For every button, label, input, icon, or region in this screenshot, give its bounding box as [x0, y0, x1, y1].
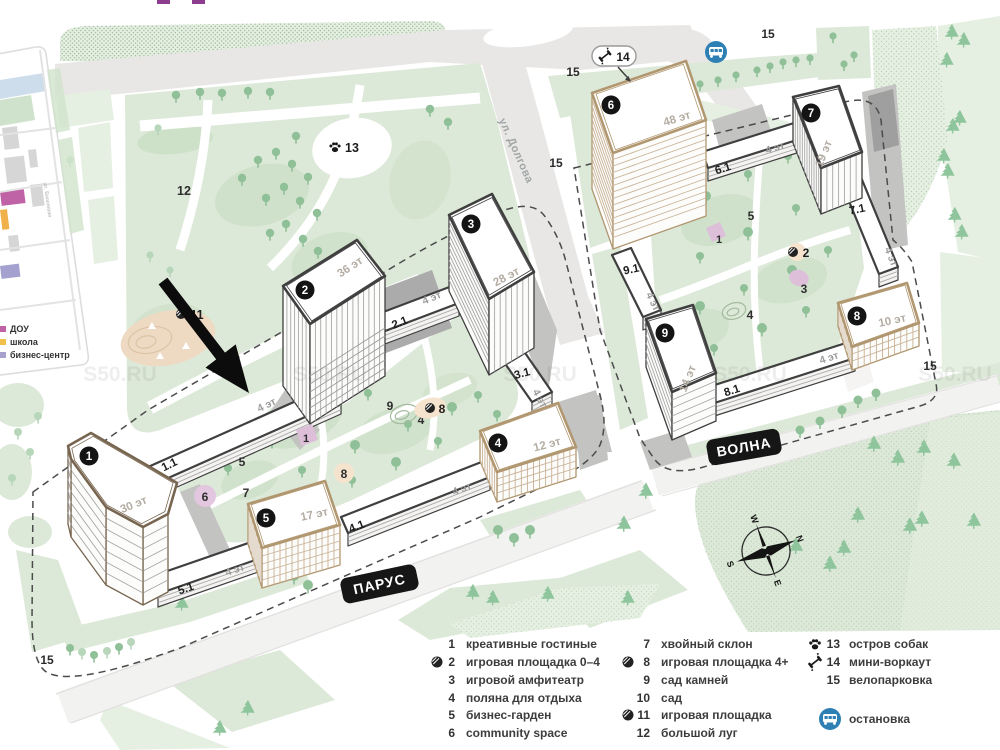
svg-text:большой луг: большой луг [661, 726, 738, 740]
svg-text:S50.RU: S50.RU [503, 363, 577, 386]
svg-text:1: 1 [303, 433, 309, 445]
svg-text:сад камней: сад камней [661, 673, 728, 687]
svg-text:S50.RU: S50.RU [918, 363, 992, 386]
svg-text:3: 3 [448, 673, 455, 687]
svg-text:13: 13 [345, 141, 359, 155]
svg-text:9: 9 [643, 673, 650, 687]
svg-text:2: 2 [448, 655, 455, 669]
svg-text:4: 4 [495, 438, 502, 450]
svg-text:13: 13 [827, 637, 841, 651]
svg-text:12: 12 [177, 184, 191, 198]
svg-text:15: 15 [827, 673, 841, 687]
svg-text:велопарковка: велопарковка [849, 673, 933, 687]
svg-text:10: 10 [637, 691, 651, 705]
svg-text:9: 9 [662, 328, 668, 340]
svg-text:5: 5 [448, 708, 455, 722]
svg-text:15: 15 [761, 27, 775, 41]
svg-text:4: 4 [448, 691, 455, 705]
svg-text:S50.RU: S50.RU [83, 363, 157, 386]
svg-text:6: 6 [608, 100, 614, 112]
svg-text:хвойный склон: хвойный склон [661, 637, 753, 651]
svg-text:5: 5 [239, 455, 246, 469]
svg-text:2: 2 [302, 285, 308, 297]
svg-text:8: 8 [439, 402, 446, 416]
svg-text:игровой амфитеатр: игровой амфитеатр [466, 673, 584, 687]
svg-text:15: 15 [566, 65, 580, 79]
svg-text:поляна для отдыха: поляна для отдыха [466, 691, 582, 705]
svg-text:3: 3 [801, 282, 808, 296]
svg-text:остров собак: остров собак [849, 637, 929, 651]
svg-text:креативные гостиные: креативные гостиные [466, 637, 597, 651]
svg-text:игровая площадка: игровая площадка [661, 708, 772, 722]
svg-text:5: 5 [263, 513, 270, 525]
svg-text:12: 12 [637, 726, 651, 740]
svg-text:6: 6 [202, 490, 209, 504]
svg-text:14: 14 [827, 655, 841, 669]
svg-text:community space: community space [466, 726, 568, 740]
svg-text:8: 8 [341, 467, 348, 481]
svg-text:игровая площадка 0–4: игровая площадка 0–4 [466, 655, 600, 669]
svg-text:15: 15 [549, 156, 563, 170]
svg-text:школа: школа [10, 337, 39, 347]
svg-text:8: 8 [854, 311, 861, 323]
svg-text:1: 1 [716, 234, 722, 246]
svg-text:ДОУ: ДОУ [10, 324, 29, 334]
svg-text:игровая площадка 4+: игровая площадка 4+ [661, 655, 789, 669]
svg-text:S50.RU: S50.RU [293, 363, 367, 386]
svg-text:сад: сад [661, 691, 682, 705]
svg-text:8: 8 [643, 655, 650, 669]
svg-text:7: 7 [643, 637, 650, 651]
svg-text:S50.RU: S50.RU [713, 363, 787, 386]
svg-text:14: 14 [616, 50, 630, 64]
svg-text:бизнес-гарден: бизнес-гарден [466, 708, 551, 722]
svg-text:15: 15 [40, 653, 54, 667]
svg-text:7: 7 [243, 486, 250, 500]
svg-text:1: 1 [86, 451, 93, 463]
svg-text:3: 3 [468, 219, 474, 231]
svg-text:1: 1 [448, 637, 455, 651]
svg-text:6: 6 [448, 726, 455, 740]
svg-text:мини-воркаут: мини-воркаут [849, 655, 931, 669]
svg-text:4: 4 [747, 308, 754, 322]
svg-text:остановка: остановка [849, 712, 910, 726]
svg-text:2: 2 [803, 246, 810, 260]
svg-text:бизнес-центр: бизнес-центр [10, 350, 70, 360]
svg-text:5: 5 [748, 209, 755, 223]
svg-text:11: 11 [637, 708, 650, 722]
svg-text:7: 7 [808, 108, 814, 120]
